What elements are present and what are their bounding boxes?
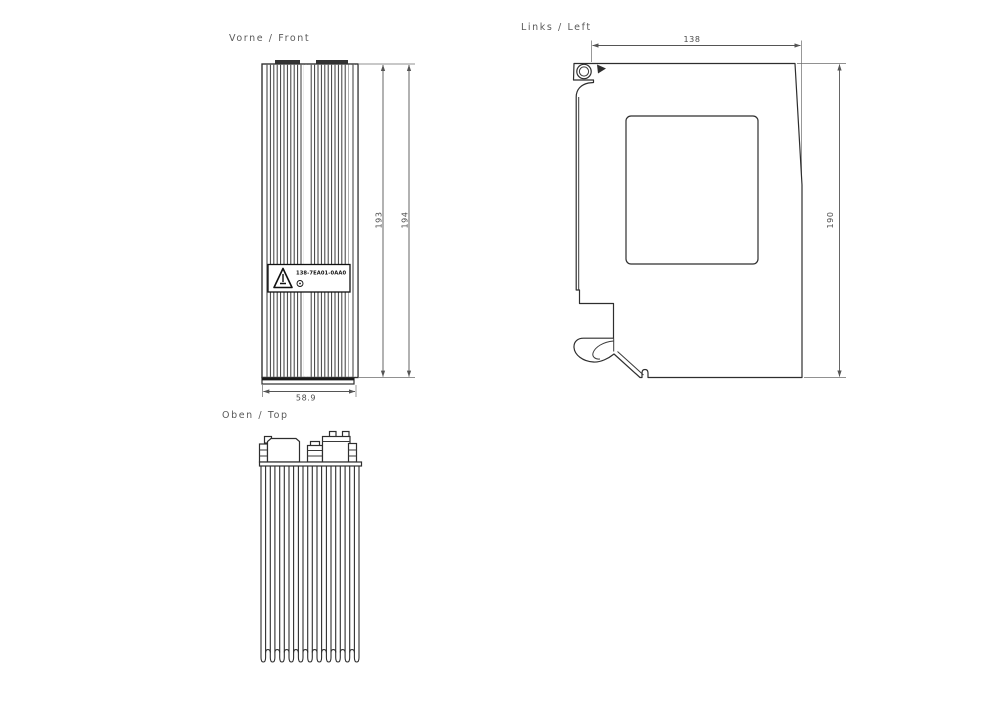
top-heatsink-fins <box>261 466 359 663</box>
dim-190: 190 <box>826 211 835 228</box>
engineering-drawing-page: Vorne / Front <box>0 0 1000 706</box>
part-number-text: 138-7EA01-0AA0 <box>296 271 346 277</box>
left-height-dimension: 190 <box>797 64 846 378</box>
middle-connector-block <box>308 442 323 463</box>
front-heatsink-body <box>262 64 358 378</box>
front-width-dimension: 58.9 <box>262 385 356 403</box>
left-connector-block <box>265 437 300 463</box>
top-connectors <box>260 432 357 463</box>
front-base-plate <box>262 378 354 385</box>
top-view-drawing <box>248 426 373 676</box>
left-louver-stack <box>260 444 268 462</box>
front-view-drawing: 138-7EA01-0AA0 193 194 58.9 <box>250 50 430 410</box>
right-connector-block <box>323 432 351 463</box>
dim-194: 194 <box>401 211 410 228</box>
left-module-outline <box>574 64 803 378</box>
top-view-title: Oben / Top <box>222 410 289 421</box>
top-body-edge <box>260 462 362 466</box>
front-rating-label: 138-7EA01-0AA0 <box>268 265 350 293</box>
dim-138: 138 <box>683 35 700 44</box>
left-view-drawing: 138 1 <box>555 30 855 390</box>
front-height-dimensions: 193 194 <box>359 64 415 378</box>
front-view-title: Vorne / Front <box>229 33 310 44</box>
dim-193: 193 <box>375 211 384 228</box>
dim-58-9: 58.9 <box>296 394 316 403</box>
right-louver-stack <box>349 444 357 463</box>
